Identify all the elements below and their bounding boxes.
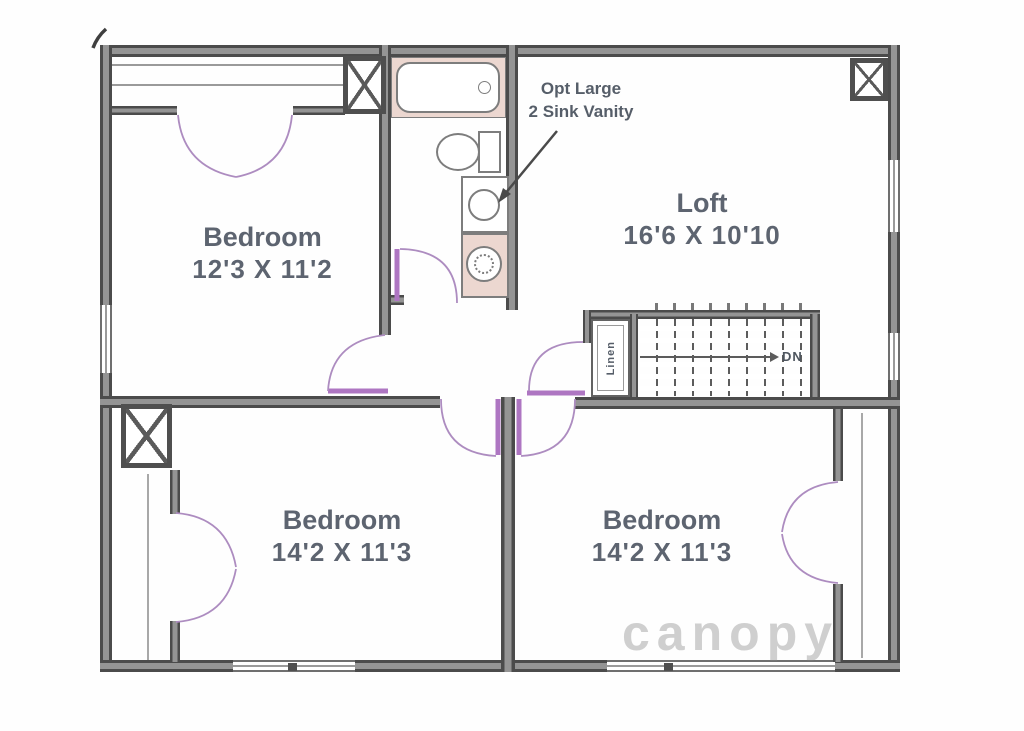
room-dims: 14'2 X 11'3 — [542, 537, 782, 568]
room-label-bedroom-top-left: Bedroom 12'3 X 11'2 — [150, 222, 375, 285]
door-swing-br-closet-top — [782, 482, 838, 532]
door-swing-bedroom1 — [328, 335, 385, 391]
vanity-annotation: Opt Large 2 Sink Vanity — [512, 78, 650, 124]
vanity-main-sink-inner — [474, 254, 494, 274]
window-mullion-right — [664, 663, 673, 671]
door-swing-stairwell — [529, 342, 583, 391]
chase-box-bottom-left — [121, 404, 172, 468]
stairs-direction-arrow — [770, 352, 779, 362]
room-dims: 12'3 X 11'2 — [150, 254, 375, 285]
door-swing-br-closet-bottom — [782, 534, 838, 583]
br-closet-rod — [861, 413, 863, 658]
door-swing-bathroom — [400, 249, 457, 303]
bl-closet-rod — [147, 474, 149, 660]
wall-closet1-front-right — [293, 106, 345, 115]
door-swing-closet1-left — [178, 115, 236, 177]
room-dims: 16'6 X 10'10 — [592, 220, 812, 251]
room-name: Bedroom — [222, 505, 462, 537]
vanity-optional-sink — [468, 189, 500, 221]
room-name: Bedroom — [542, 505, 782, 537]
closet1-shelf-line-2 — [112, 84, 343, 86]
toilet-tank — [478, 131, 501, 173]
stairs-nosing-ticks — [640, 303, 812, 310]
floor-plan: DN Linen Bedroom 12'3 X 11'2 Loft 16'6 X… — [0, 0, 1024, 731]
linen-label: Linen — [605, 341, 617, 375]
wall-stairs-east — [810, 314, 820, 397]
wall-bl-closet-front-lower — [170, 621, 180, 662]
exterior-wall-bottom-right — [835, 660, 900, 672]
room-label-bedroom-bottom-right: Bedroom 14'2 X 11'3 — [542, 505, 782, 568]
window-left-wall — [100, 305, 112, 373]
watermark: canopy — [622, 604, 839, 662]
chase-box-top-right — [850, 58, 888, 101]
vanity-annotation-line2: 2 Sink Vanity — [512, 101, 650, 124]
exterior-wall-left-lower — [100, 373, 112, 672]
window-mullion-left — [288, 663, 297, 671]
toilet-bowl — [436, 133, 480, 171]
room-dims: 14'2 X 11'3 — [222, 537, 462, 568]
wall-closet1-front-left — [112, 106, 177, 115]
wall-between-bottom-bedrooms — [501, 397, 515, 672]
wall-linen-west-stub — [583, 310, 591, 343]
room-name: Bedroom — [150, 222, 375, 254]
exterior-wall-bottom-left — [100, 660, 233, 672]
chase-box-top-middle — [343, 56, 386, 114]
wall-br-closet-front-upper — [833, 409, 843, 481]
exterior-wall-left-upper — [100, 45, 112, 305]
tub-faucet — [478, 81, 491, 94]
exterior-wall-bottom-mid — [355, 660, 607, 672]
linen-closet-inner: Linen — [597, 325, 624, 391]
wall-hall-south — [575, 397, 900, 409]
room-label-bedroom-bottom-left: Bedroom 14'2 X 11'3 — [222, 505, 462, 568]
exterior-wall-top — [100, 45, 900, 57]
stairs-dn-label: DN — [782, 349, 803, 364]
exterior-wall-right-mid — [888, 232, 900, 333]
stairs-centerline — [640, 356, 770, 358]
window-right-upper — [888, 160, 900, 232]
linen-closet: Linen — [591, 319, 630, 397]
wall-linen-stairs — [630, 314, 638, 397]
closet1-shelf-line-1 — [112, 64, 343, 66]
door-swing-bl-closet-bottom — [176, 569, 236, 622]
wall-stairs-top — [583, 310, 820, 319]
door-swing-closet1-right — [236, 115, 292, 177]
wall-bl-closet-front-upper — [170, 470, 180, 514]
wall-bathroom-door-stub — [391, 295, 404, 305]
room-label-loft: Loft 16'6 X 10'10 — [592, 188, 812, 251]
exterior-wall-right-lower — [888, 380, 900, 672]
door-swing-bedroom2 — [441, 399, 496, 456]
room-name: Loft — [592, 188, 812, 220]
exterior-wall-right-upper — [888, 45, 900, 160]
vanity-annotation-line1: Opt Large — [512, 78, 650, 101]
window-right-lower — [888, 333, 900, 380]
door-swing-bedroom3 — [521, 399, 575, 456]
